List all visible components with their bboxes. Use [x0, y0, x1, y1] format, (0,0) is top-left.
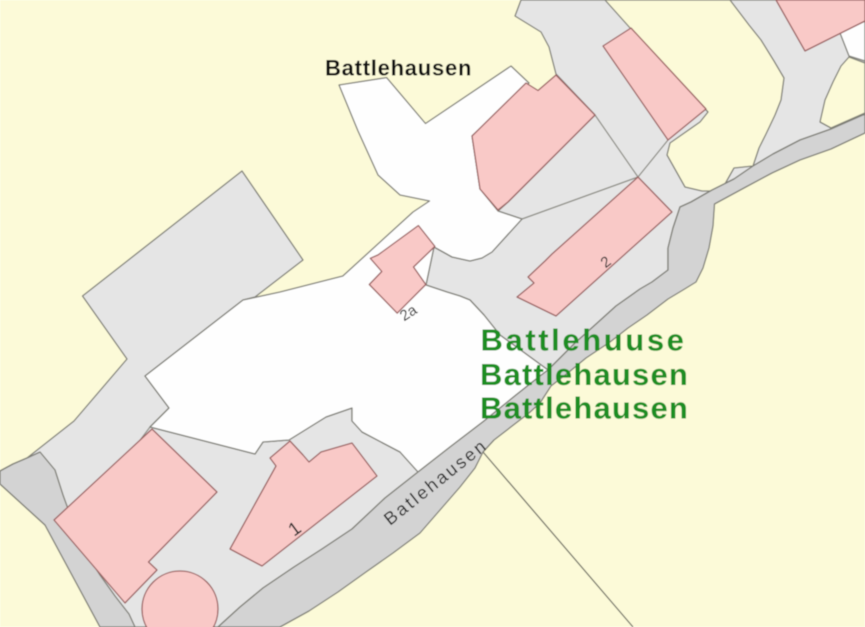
svg-text:Battlehausen: Battlehausen	[325, 56, 472, 81]
svg-text:Battlehausen: Battlehausen	[480, 357, 689, 392]
svg-text:Battlehausen: Battlehausen	[480, 391, 689, 426]
svg-text:Battlehuuse: Battlehuuse	[481, 323, 687, 358]
